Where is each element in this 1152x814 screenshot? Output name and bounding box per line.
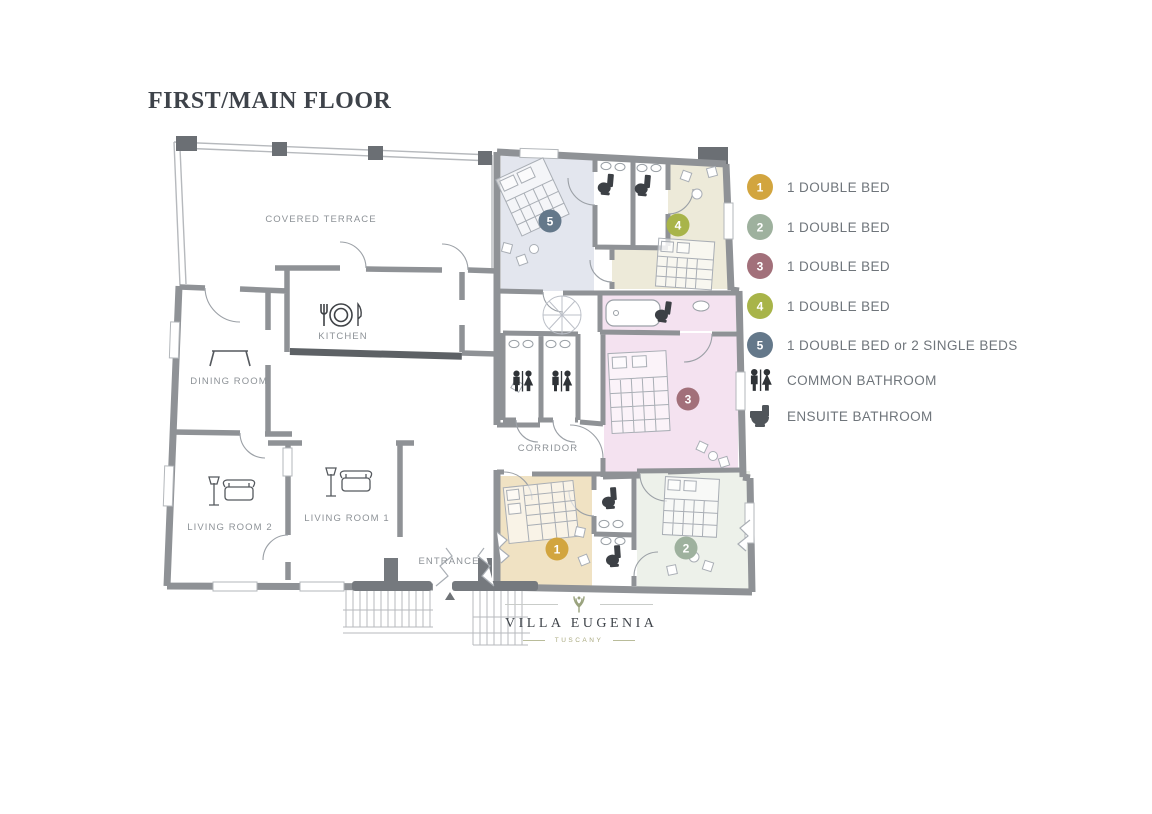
- legend-item-1: 1 1 DOUBLE BED: [747, 174, 890, 200]
- label-entrance: ENTRANCE: [418, 556, 479, 567]
- legend-label: 1 DOUBLE BED: [787, 220, 890, 235]
- legend-label: ENSUITE BATHROOM: [787, 409, 933, 424]
- legend-item-4: 4 1 DOUBLE BED: [747, 293, 890, 319]
- room-1-badge: 1: [546, 538, 569, 561]
- legend-badge-1: 1: [747, 174, 773, 200]
- logo-dash-left: [523, 640, 545, 641]
- floorplan-drawing: 1 2 3 4 5 COVERED TERRACE KITCHEN D: [0, 0, 1152, 814]
- label-living-room-2: LIVING ROOM 2: [187, 522, 273, 533]
- room-5-badge: 5: [539, 210, 562, 233]
- legend-badge-5: 5: [747, 332, 773, 358]
- bed-room-4: [655, 238, 714, 290]
- legend-label: 1 DOUBLE BED or 2 SINGLE BEDS: [787, 338, 1018, 353]
- living-room-1-icons: [326, 468, 372, 496]
- label-corridor: CORRIDOR: [518, 443, 579, 454]
- legend-label: 1 DOUBLE BED: [787, 180, 890, 195]
- villa-logo: VILLA EUGENIA TUSCANY: [505, 594, 653, 644]
- sprout-icon: [566, 594, 592, 614]
- entrance-stairs: [343, 589, 530, 645]
- room-3-badge: 3: [677, 388, 700, 411]
- label-dining-room: DINING ROOM: [190, 376, 268, 387]
- spiral-staircase: [543, 296, 581, 334]
- legend-item-3: 3 1 DOUBLE BED: [747, 253, 890, 279]
- legend-item-5: 5 1 DOUBLE BED or 2 SINGLE BEDS: [747, 332, 1018, 358]
- toilet-icon: [597, 173, 614, 196]
- bed-room-2: [662, 477, 719, 538]
- logo-rule-right: [600, 604, 653, 605]
- svg-text:3: 3: [757, 260, 764, 274]
- legend-badge-2: 2: [747, 214, 773, 240]
- legend-item-2: 2 1 DOUBLE BED: [747, 214, 890, 240]
- svg-text:4: 4: [757, 300, 764, 314]
- legend-badge-3: 3: [747, 253, 773, 279]
- legend-badge-4: 4: [747, 293, 773, 319]
- living-room-2-icons: [209, 477, 255, 505]
- wc-people-icon: [553, 371, 572, 392]
- dining-table-icon: [210, 351, 250, 366]
- radiator: [283, 448, 292, 476]
- wc-people-icon: [514, 371, 533, 392]
- entrance-marker: [445, 592, 455, 600]
- toilet-icon: [747, 403, 773, 429]
- label-covered-terrace: COVERED TERRACE: [265, 214, 376, 225]
- floorplan-page: FIRST/MAIN FLOOR: [0, 0, 1152, 814]
- toilet-icon: [605, 545, 621, 567]
- legend-label: 1 DOUBLE BED: [787, 299, 890, 314]
- toilet-icon: [634, 174, 651, 197]
- legend-label: COMMON BATHROOM: [787, 373, 937, 388]
- wc-people-icon: [747, 367, 773, 393]
- legend-common-bathroom: COMMON BATHROOM: [747, 367, 937, 393]
- room-2-badge: 2: [675, 537, 698, 560]
- logo-subtitle: TUSCANY: [555, 637, 604, 644]
- logo-dash-right: [613, 640, 635, 641]
- svg-text:3: 3: [685, 393, 692, 407]
- svg-text:2: 2: [757, 221, 764, 235]
- kitchen-icon: [321, 304, 361, 326]
- svg-text:4: 4: [675, 219, 682, 233]
- svg-text:2: 2: [683, 542, 690, 556]
- legend-ensuite-bathroom: ENSUITE BATHROOM: [747, 403, 933, 429]
- room-4-badge: 4: [667, 214, 690, 237]
- logo-rule-left: [505, 604, 558, 605]
- bathtub-icon: [606, 300, 660, 326]
- svg-text:1: 1: [757, 181, 764, 195]
- logo-name: VILLA EUGENIA: [505, 616, 653, 632]
- toilet-icon: [601, 487, 617, 509]
- legend-label: 1 DOUBLE BED: [787, 259, 890, 274]
- svg-text:1: 1: [554, 543, 561, 557]
- kitchen-counter: [290, 348, 462, 360]
- bed-room-3: [608, 351, 670, 434]
- svg-text:5: 5: [547, 215, 554, 229]
- label-living-room-1: LIVING ROOM 1: [304, 513, 390, 524]
- label-kitchen: KITCHEN: [318, 331, 367, 342]
- bed-room-1: [503, 480, 578, 543]
- svg-text:5: 5: [757, 339, 764, 353]
